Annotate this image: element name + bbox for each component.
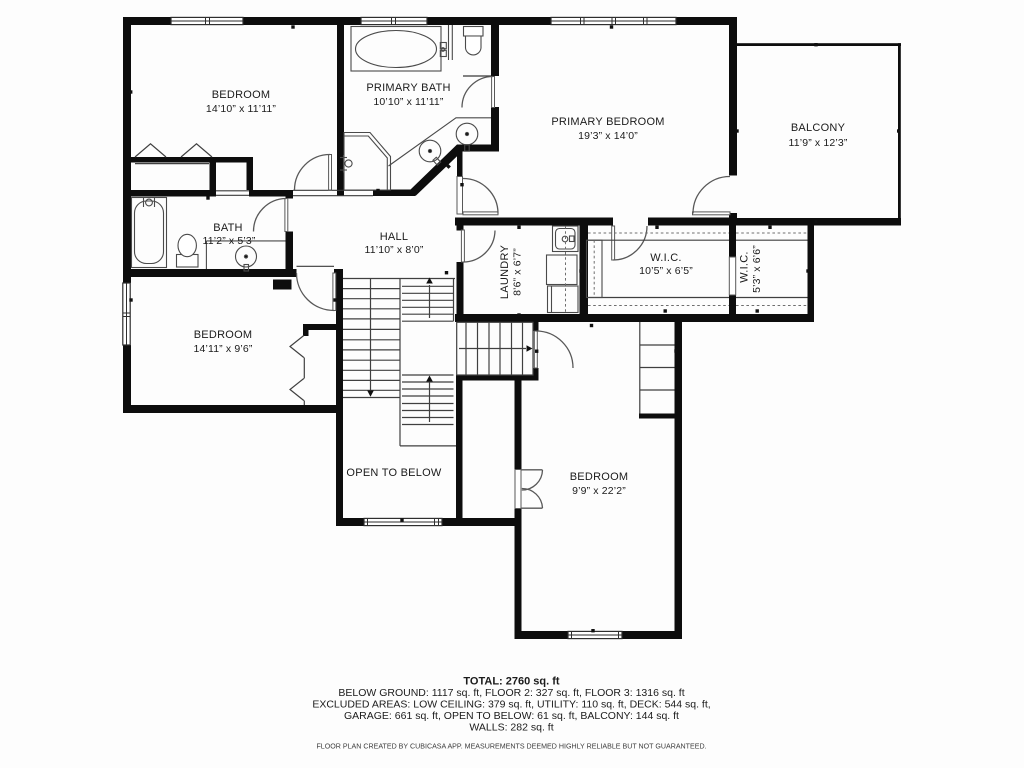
svg-text:BEDROOM: BEDROOM [570,471,629,483]
svg-text:11’10” x 8’0”: 11’10” x 8’0” [365,244,424,256]
svg-text:10’5” x 6’5”: 10’5” x 6’5” [639,265,693,277]
svg-text:19’3” x 14’0”: 19’3” x 14’0” [578,130,638,142]
svg-text:BATH: BATH [213,222,243,234]
svg-text:OPEN TO BELOW: OPEN TO BELOW [346,467,442,479]
svg-text:5’3” x 6’6”: 5’3” x 6’6” [751,245,763,293]
svg-text:W.I.C.: W.I.C. [739,251,751,282]
svg-text:BEDROOM: BEDROOM [194,329,253,341]
svg-text:HALL: HALL [380,231,409,243]
svg-text:14’11” x 9’6”: 14’11” x 9’6” [194,343,253,355]
svg-text:10’10” x 11’11”: 10’10” x 11’11” [373,96,444,108]
svg-text:BELOW GROUND: 1117 sq. ft, FLO: BELOW GROUND: 1117 sq. ft, FLOOR 2: 327 … [338,687,684,699]
svg-text:PRIMARY BATH: PRIMARY BATH [366,82,450,94]
svg-text:W.I.C.: W.I.C. [650,252,681,264]
svg-text:FLOOR PLAN CREATED BY CUBICASA: FLOOR PLAN CREATED BY CUBICASA APP. MEAS… [316,743,706,751]
svg-text:GARAGE: 661 sq. ft, OPEN TO BE: GARAGE: 661 sq. ft, OPEN TO BELOW: 61 sq… [344,710,679,722]
svg-text:11’2” x 5’3”: 11’2” x 5’3” [203,235,256,247]
svg-text:BEDROOM: BEDROOM [212,89,271,101]
svg-text:LAUNDRY: LAUNDRY [499,245,511,300]
svg-text:TOTAL: 2760 sq. ft: TOTAL: 2760 sq. ft [463,676,560,688]
svg-text:11’9” x 12’3”: 11’9” x 12’3” [789,137,848,149]
svg-text:9’9” x 22’2”: 9’9” x 22’2” [572,485,626,497]
svg-text:WALLS: 282 sq. ft: WALLS: 282 sq. ft [469,722,553,734]
svg-text:8’6” x 6’7”: 8’6” x 6’7” [512,248,524,296]
svg-text:BALCONY: BALCONY [791,122,846,134]
svg-text:EXCLUDED AREAS: LOW CEILING: 3: EXCLUDED AREAS: LOW CEILING: 379 sq. ft,… [312,699,710,711]
svg-text:PRIMARY BEDROOM: PRIMARY BEDROOM [551,116,664,128]
svg-text:14’10” x 11’11”: 14’10” x 11’11” [206,103,277,115]
